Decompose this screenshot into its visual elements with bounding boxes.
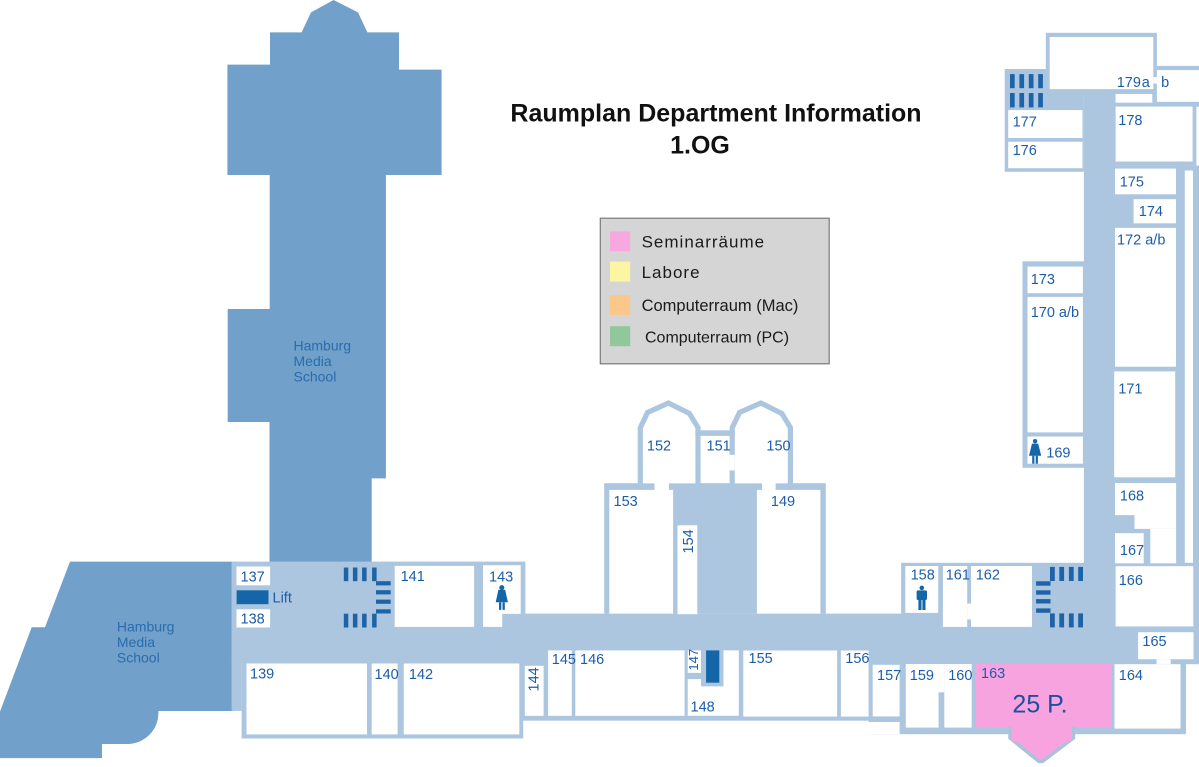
svg-text:178: 178 [1118,113,1142,129]
svg-text:Computerraum (PC): Computerraum (PC) [645,329,789,346]
svg-text:Labore: Labore [642,263,701,282]
svg-text:161: 161 [946,567,970,583]
svg-text:1.OG: 1.OG [670,132,730,160]
svg-text:141: 141 [401,569,425,585]
svg-text:138: 138 [241,612,265,628]
svg-text:144: 144 [527,667,543,691]
svg-text:143: 143 [489,570,513,586]
svg-text:170 a/b: 170 a/b [1031,305,1079,321]
svg-text:163: 163 [981,666,1005,682]
svg-text:137: 137 [241,570,265,586]
svg-text:156: 156 [845,651,869,667]
svg-text:151: 151 [707,439,731,455]
svg-text:Media: Media [117,634,155,650]
svg-text:173: 173 [1031,272,1055,288]
svg-text:a: a [1142,75,1151,91]
svg-text:175: 175 [1120,174,1144,190]
svg-text:167: 167 [1120,543,1144,559]
svg-text:147: 147 [686,649,701,671]
svg-text:145: 145 [552,652,576,668]
svg-text:School: School [294,369,337,385]
svg-text:159: 159 [910,668,934,684]
svg-text:166: 166 [1119,573,1143,589]
svg-text:146: 146 [580,652,604,668]
svg-text:157: 157 [877,668,901,684]
svg-text:176: 176 [1013,143,1037,159]
svg-text:Hamburg: Hamburg [117,619,175,635]
svg-text:165: 165 [1142,634,1166,650]
svg-text:155: 155 [749,651,773,667]
svg-text:149: 149 [771,494,795,510]
svg-text:179: 179 [1117,75,1141,91]
svg-text:158: 158 [911,567,935,583]
svg-text:169: 169 [1046,446,1070,462]
svg-text:153: 153 [614,494,638,510]
svg-text:172 a/b: 172 a/b [1117,233,1165,249]
svg-text:142: 142 [409,667,433,683]
svg-text:Seminarräume: Seminarräume [642,233,766,252]
svg-text:School: School [117,650,160,666]
svg-text:168: 168 [1120,489,1144,505]
svg-text:150: 150 [766,439,790,455]
svg-text:148: 148 [691,700,715,716]
svg-text:164: 164 [1119,668,1143,684]
svg-text:174: 174 [1139,204,1163,220]
svg-text:Raumplan Department Informatio: Raumplan Department Information [510,100,921,128]
svg-text:177: 177 [1013,115,1037,131]
svg-text:140: 140 [375,667,399,683]
svg-text:160: 160 [948,668,972,684]
svg-text:Media: Media [294,353,332,369]
svg-text:162: 162 [976,567,1000,583]
svg-text:Computerraum (Mac): Computerraum (Mac) [642,297,799,315]
svg-text:Hamburg: Hamburg [294,338,352,354]
svg-text:Lift: Lift [273,591,292,607]
svg-text:171: 171 [1118,382,1142,398]
svg-text:154: 154 [681,529,697,553]
svg-text:b: b [1161,75,1169,91]
svg-text:139: 139 [250,667,274,683]
svg-text:152: 152 [647,439,671,455]
svg-text:25 P.: 25 P. [1012,691,1067,719]
